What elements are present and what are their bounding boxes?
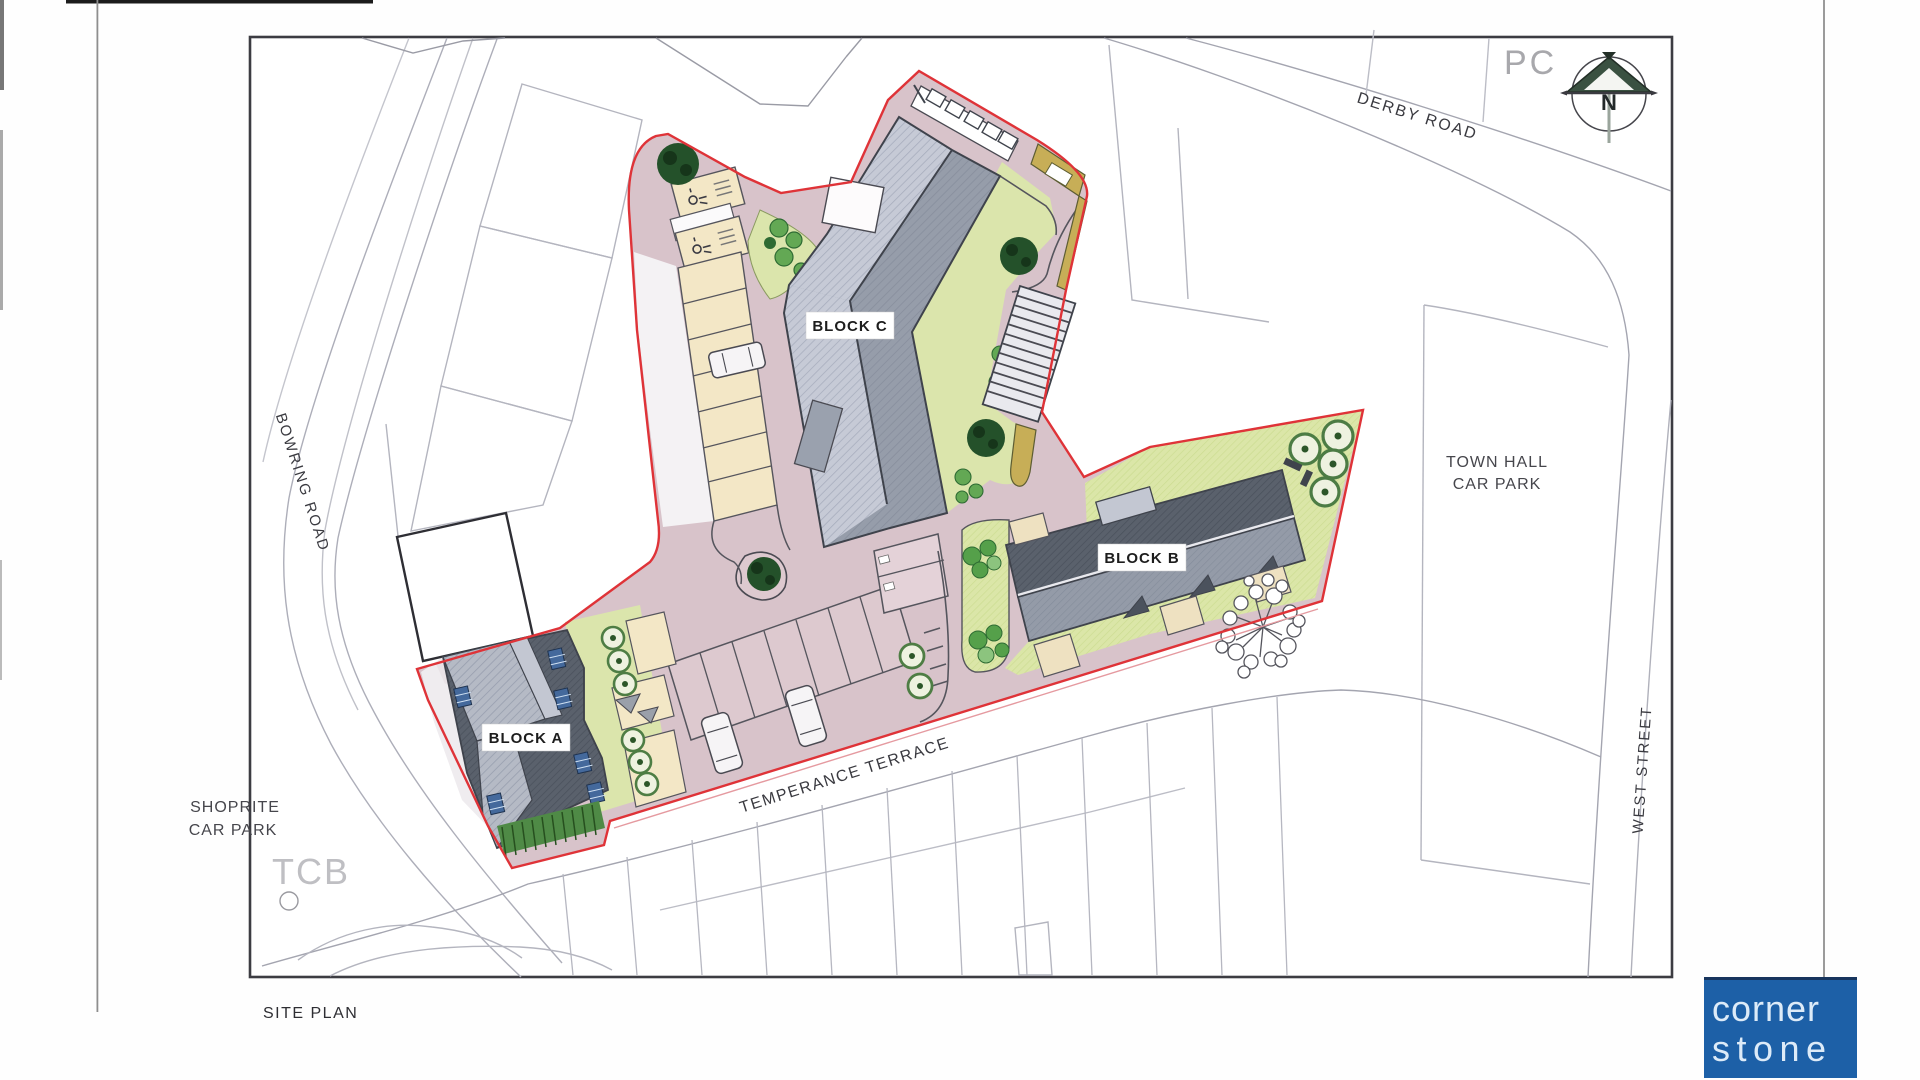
svg-text:SITE PLAN: SITE PLAN [263,1005,358,1022]
svg-text:CAR PARK: CAR PARK [189,822,278,839]
svg-text:N: N [1601,90,1617,115]
svg-text:BLOCK B: BLOCK B [1104,550,1179,567]
svg-text:corner: corner [1712,988,1820,1029]
svg-text:SHOPRITE: SHOPRITE [190,799,280,816]
svg-text:PC: PC [1504,44,1557,82]
svg-text:TCB: TCB [272,851,350,892]
svg-text:BLOCK A: BLOCK A [489,730,564,747]
svg-text:TOWN HALL: TOWN HALL [1446,454,1548,471]
svg-text:BLOCK C: BLOCK C [812,318,887,335]
svg-text:stone: stone [1712,1028,1833,1069]
svg-text:CAR PARK: CAR PARK [1453,476,1542,493]
